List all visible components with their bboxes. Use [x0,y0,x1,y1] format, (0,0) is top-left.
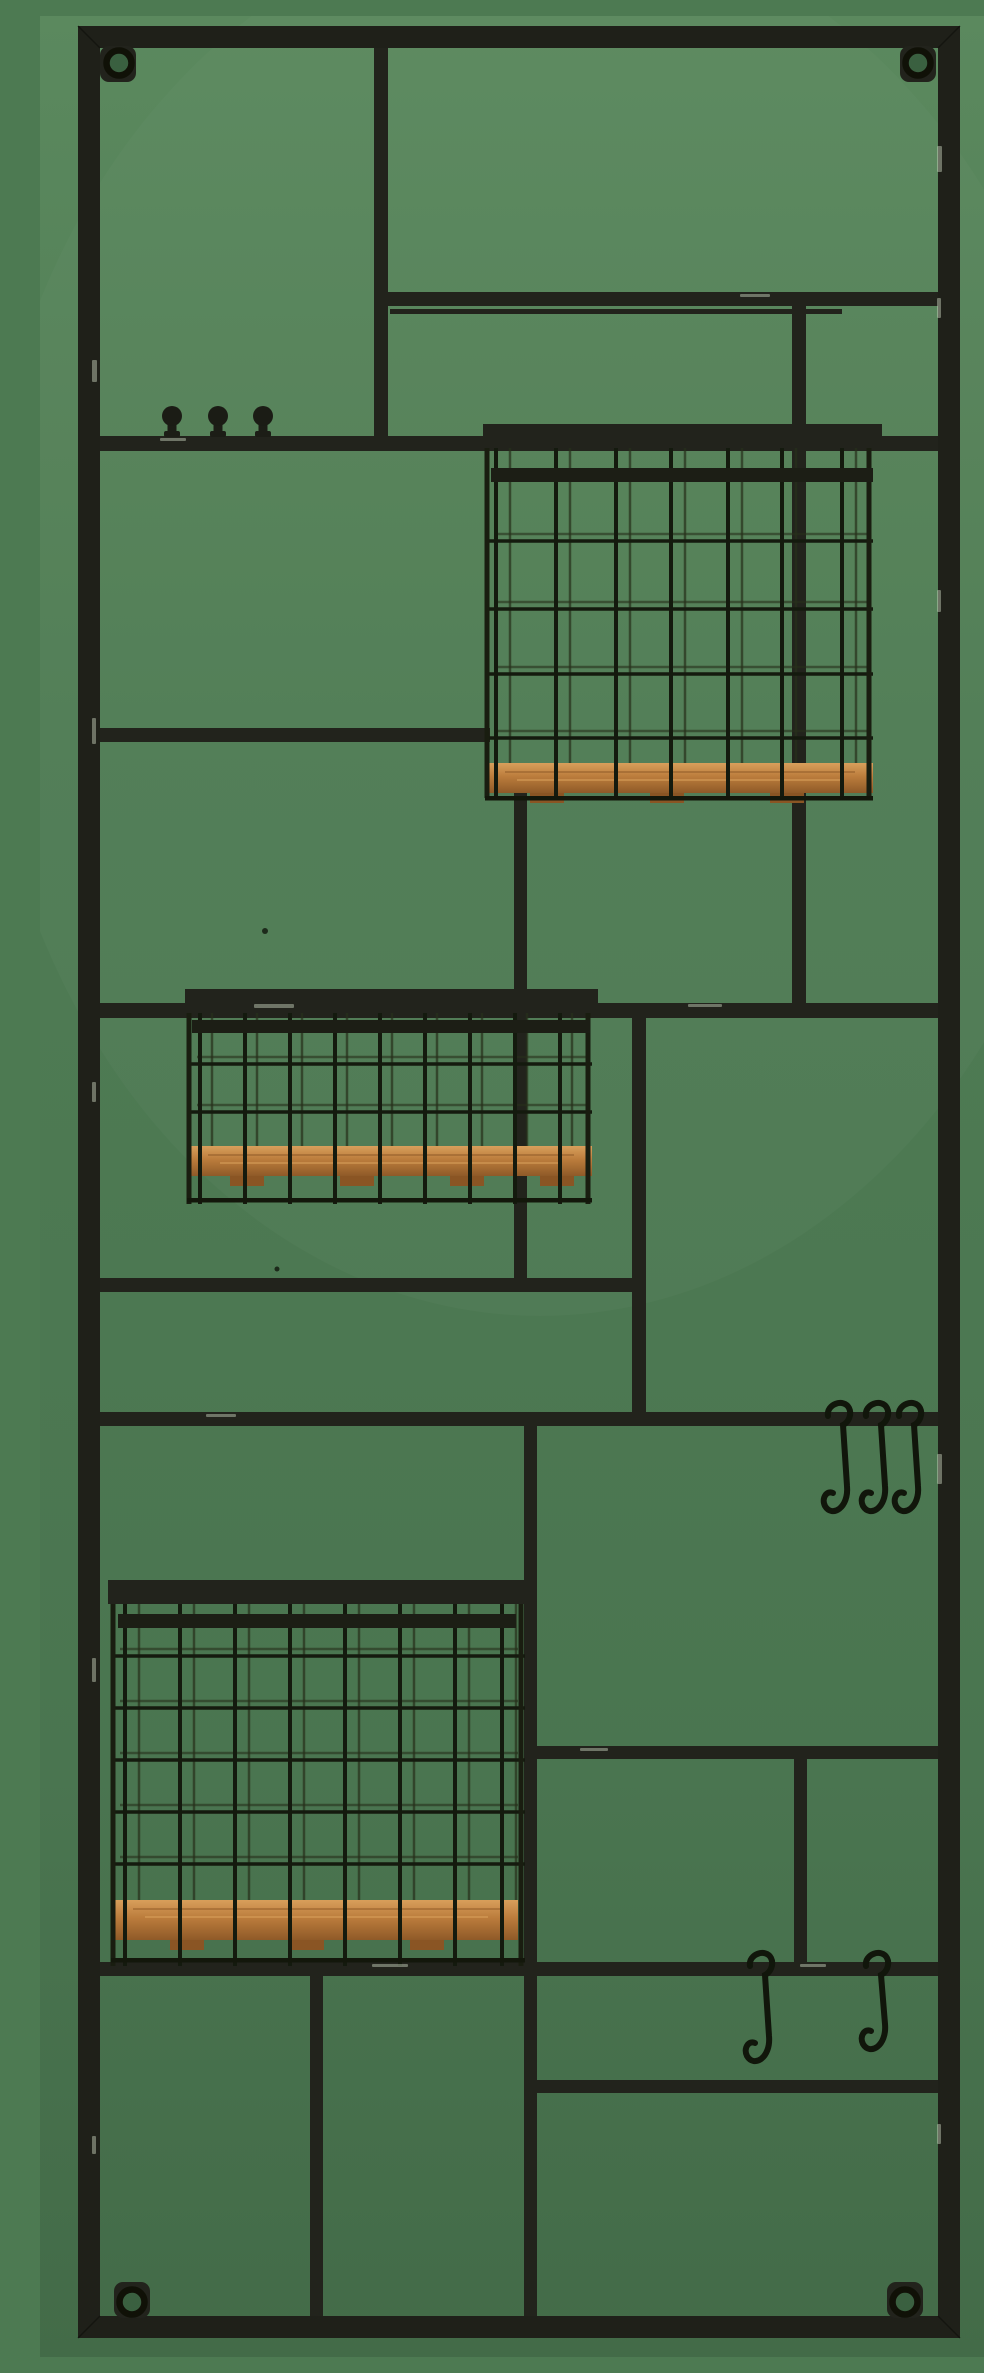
top-right-screw [900,46,936,82]
wood-plank [190,1146,592,1176]
coat-knob [208,406,228,437]
paint-chip [580,1748,608,1751]
basket-top-rail [185,989,598,1013]
paint-chip [800,1964,826,1967]
bar-post-bottom-left [310,1976,323,2316]
paint-chip [206,1414,236,1417]
basket-front-rim [118,1614,516,1628]
bar-shelf-lower-right [528,1746,938,1759]
top-left-screw [100,46,136,82]
paint-chip [937,146,942,172]
plank-foot [410,1940,444,1950]
paint-chip [92,360,97,382]
product-photo: Black metal modular wall organizer rack … [40,16,984,2357]
basket-front-rim [192,1020,590,1033]
frame-right [938,26,960,2338]
bar-shelf-top-right-lip [390,309,842,314]
basket-top-rail [483,424,882,448]
paint-chip [92,1658,96,1682]
paint-chip [937,298,941,318]
paint-chip [160,438,186,441]
frame-bottom [78,2316,960,2338]
bar-shelf-mid-left [100,728,490,742]
wall-rack-svg [40,16,984,2357]
paint-chip [92,1082,96,1102]
paint-chip [937,1454,942,1484]
paint-chip [740,294,770,297]
paint-chip [92,2136,96,2154]
bar-shelf-under-basket-two [100,1278,646,1292]
paint-chip [937,590,941,612]
coat-knobs [162,406,273,437]
bar-post-right-of-basket-three [524,1426,537,2316]
bar-post-lower-right [794,1759,807,1964]
wall-speck [262,928,268,934]
bar-post-behind-basket-one [792,306,806,1008]
paint-chip [372,1964,408,1967]
bottom-right-screw [887,2282,923,2318]
basket-front-rim [491,468,873,482]
plank-foot [290,1940,324,1950]
plank-foot [540,1176,574,1186]
paint-chip [92,718,96,744]
frame-top [78,26,960,48]
wood-plank [487,763,873,793]
paint-chip [254,1004,294,1008]
bar-post-middle [632,1018,646,1414]
bar-shelf-top-right [381,292,938,306]
plank-foot [340,1176,374,1186]
wood-plank [115,1900,518,1940]
coat-knob [253,406,273,437]
plank-foot [170,1940,204,1950]
wall-speck [275,1267,280,1272]
bar-divider-top [374,48,388,443]
coat-knob [162,406,182,437]
bar-shelf-bottom-right [530,2080,938,2093]
plank-foot [450,1176,484,1186]
paint-chip [937,2124,941,2144]
basket-top-rail [108,1580,530,1604]
bottom-left-screw [114,2282,150,2318]
paint-chip [688,1004,722,1007]
